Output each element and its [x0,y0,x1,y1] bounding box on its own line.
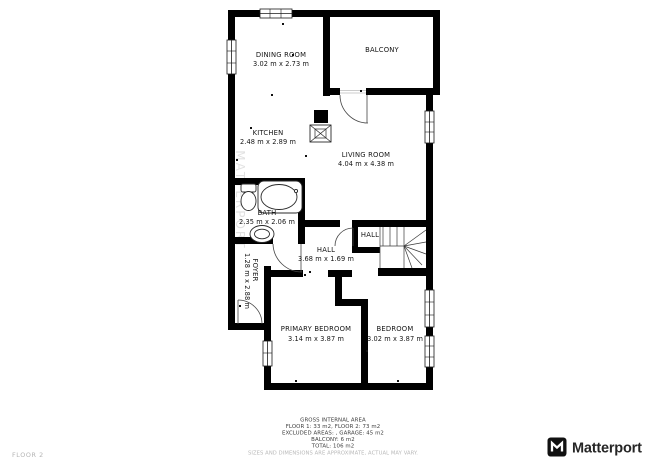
balcony-label: BALCONY [365,46,399,54]
kitchen-label: KITCHEN [253,129,284,137]
excluded-areas-line: EXCLUDED AREAS: , GARAGE: 45 m2 [282,431,384,437]
hall-label: HALL [317,246,335,254]
floor-label: FLOOR 2 [12,451,44,459]
kitchen-fixtures [310,110,331,142]
window-right-bedroom-upper [425,290,434,327]
sink [250,226,274,243]
area-summary: GROSS INTERNAL AREA FLOOR 1: 33 m2, FLOO… [248,418,418,457]
disclaimer-text: SIZES AND DIMENSIONS ARE APPROXIMATE, AC… [248,451,418,457]
stove [310,125,331,142]
toilet [241,184,256,211]
bedroom-label: BEDROOM [377,325,414,333]
living-room-label: LIVING ROOM [342,151,390,159]
window-left-primary-bedroom [263,341,272,366]
matterport-logo: Matterport [548,438,643,457]
hall-dims: 3.68 m x 1.69 m [298,255,354,263]
bedroom-dims: 3.02 m x 3.87 m [367,335,423,343]
dining-room-dims: 3.02 m x 2.73 m [253,60,309,68]
floor-areas-line: FLOOR 1: 33 m2, FLOOR 2: 73 m2 [286,424,381,430]
matterport-wordmark: Matterport [572,441,642,457]
balcony-area-line: BALCONY: 6 m2 [311,437,355,443]
window-left-dining [227,40,236,74]
window-right-living [425,111,434,143]
total-area-line: TOTAL: 106 m2 [311,444,355,450]
balcony-door [340,91,368,124]
foyer-label: FOYER [251,258,259,281]
kitchen-dims: 2.48 m x 2.89 m [240,138,296,146]
floorplan-image: MATTERPORT [0,0,662,468]
living-room-dims: 4.04 m x 4.38 m [338,160,394,168]
dining-room-label: DINING ROOM [256,51,306,59]
matterport-icon [548,438,567,457]
landing-door [335,228,353,246]
primary-bedroom-dims: 3.14 m x 3.87 m [288,335,344,343]
window-right-bedroom-lower [425,336,434,367]
foyer-dims: 1.28 m x 2.88 m [243,253,251,309]
window-top-dining [260,9,292,18]
stairs [380,227,426,268]
kitchen-counter [314,110,328,123]
primary-bedroom-label: PRIMARY BEDROOM [281,325,351,333]
gross-internal-area-title: GROSS INTERNAL AREA [300,418,366,424]
bath-dims: 2.35 m x 2.06 m [239,218,295,226]
hall-landing-label: HALL [361,231,379,239]
bath-label: BATH [258,209,277,217]
